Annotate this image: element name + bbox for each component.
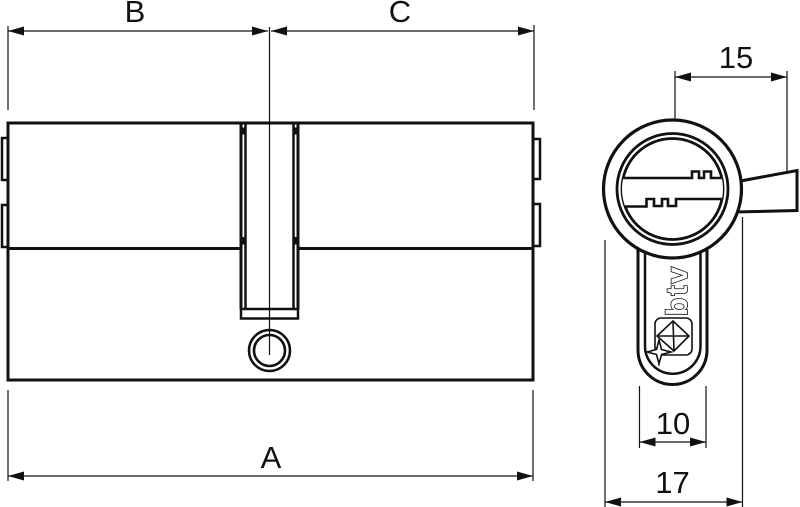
- front-view: btv 15 10: [604, 40, 798, 507]
- dim-10-label: 10: [656, 406, 690, 441]
- cam-notch-bottom-left: [242, 237, 247, 245]
- cylinder-technical-drawing: B C A: [0, 0, 800, 507]
- dim-17-arrow-left: [605, 498, 621, 507]
- dim-c-label: C: [389, 0, 411, 29]
- dimension-10: 10: [640, 386, 707, 448]
- dimension-b: B: [8, 0, 268, 110]
- dim-15-arrow-right: [771, 73, 787, 82]
- cam-notch-bottom-right: [293, 237, 298, 245]
- dim-17-label: 17: [655, 465, 689, 500]
- dim-a-arrow-right: [517, 472, 533, 481]
- dim-17-arrow-right: [727, 498, 743, 507]
- dim-b-label: B: [125, 0, 146, 29]
- dim-10-arrow-right: [690, 438, 706, 447]
- side-view: B C A: [2, 0, 540, 481]
- cam-notch-top-right: [293, 128, 298, 135]
- dim-c-arrow-left: [271, 27, 287, 36]
- cam-notch-top-left: [242, 128, 247, 135]
- dim-b-arrow-right: [252, 27, 268, 36]
- dimension-c: C: [271, 0, 534, 110]
- dim-10-arrow-left: [640, 438, 656, 447]
- dim-c-arrow-right: [518, 27, 534, 36]
- dim-a-label: A: [261, 440, 282, 475]
- brand-text: btv: [661, 265, 694, 316]
- dim-15-arrow-left: [675, 73, 691, 82]
- dimension-a: A: [8, 390, 533, 481]
- dim-a-arrow-left: [8, 472, 24, 481]
- dim-15-label: 15: [719, 40, 753, 75]
- key-tab: [735, 171, 797, 213]
- dim-b-arrow-left: [8, 27, 24, 36]
